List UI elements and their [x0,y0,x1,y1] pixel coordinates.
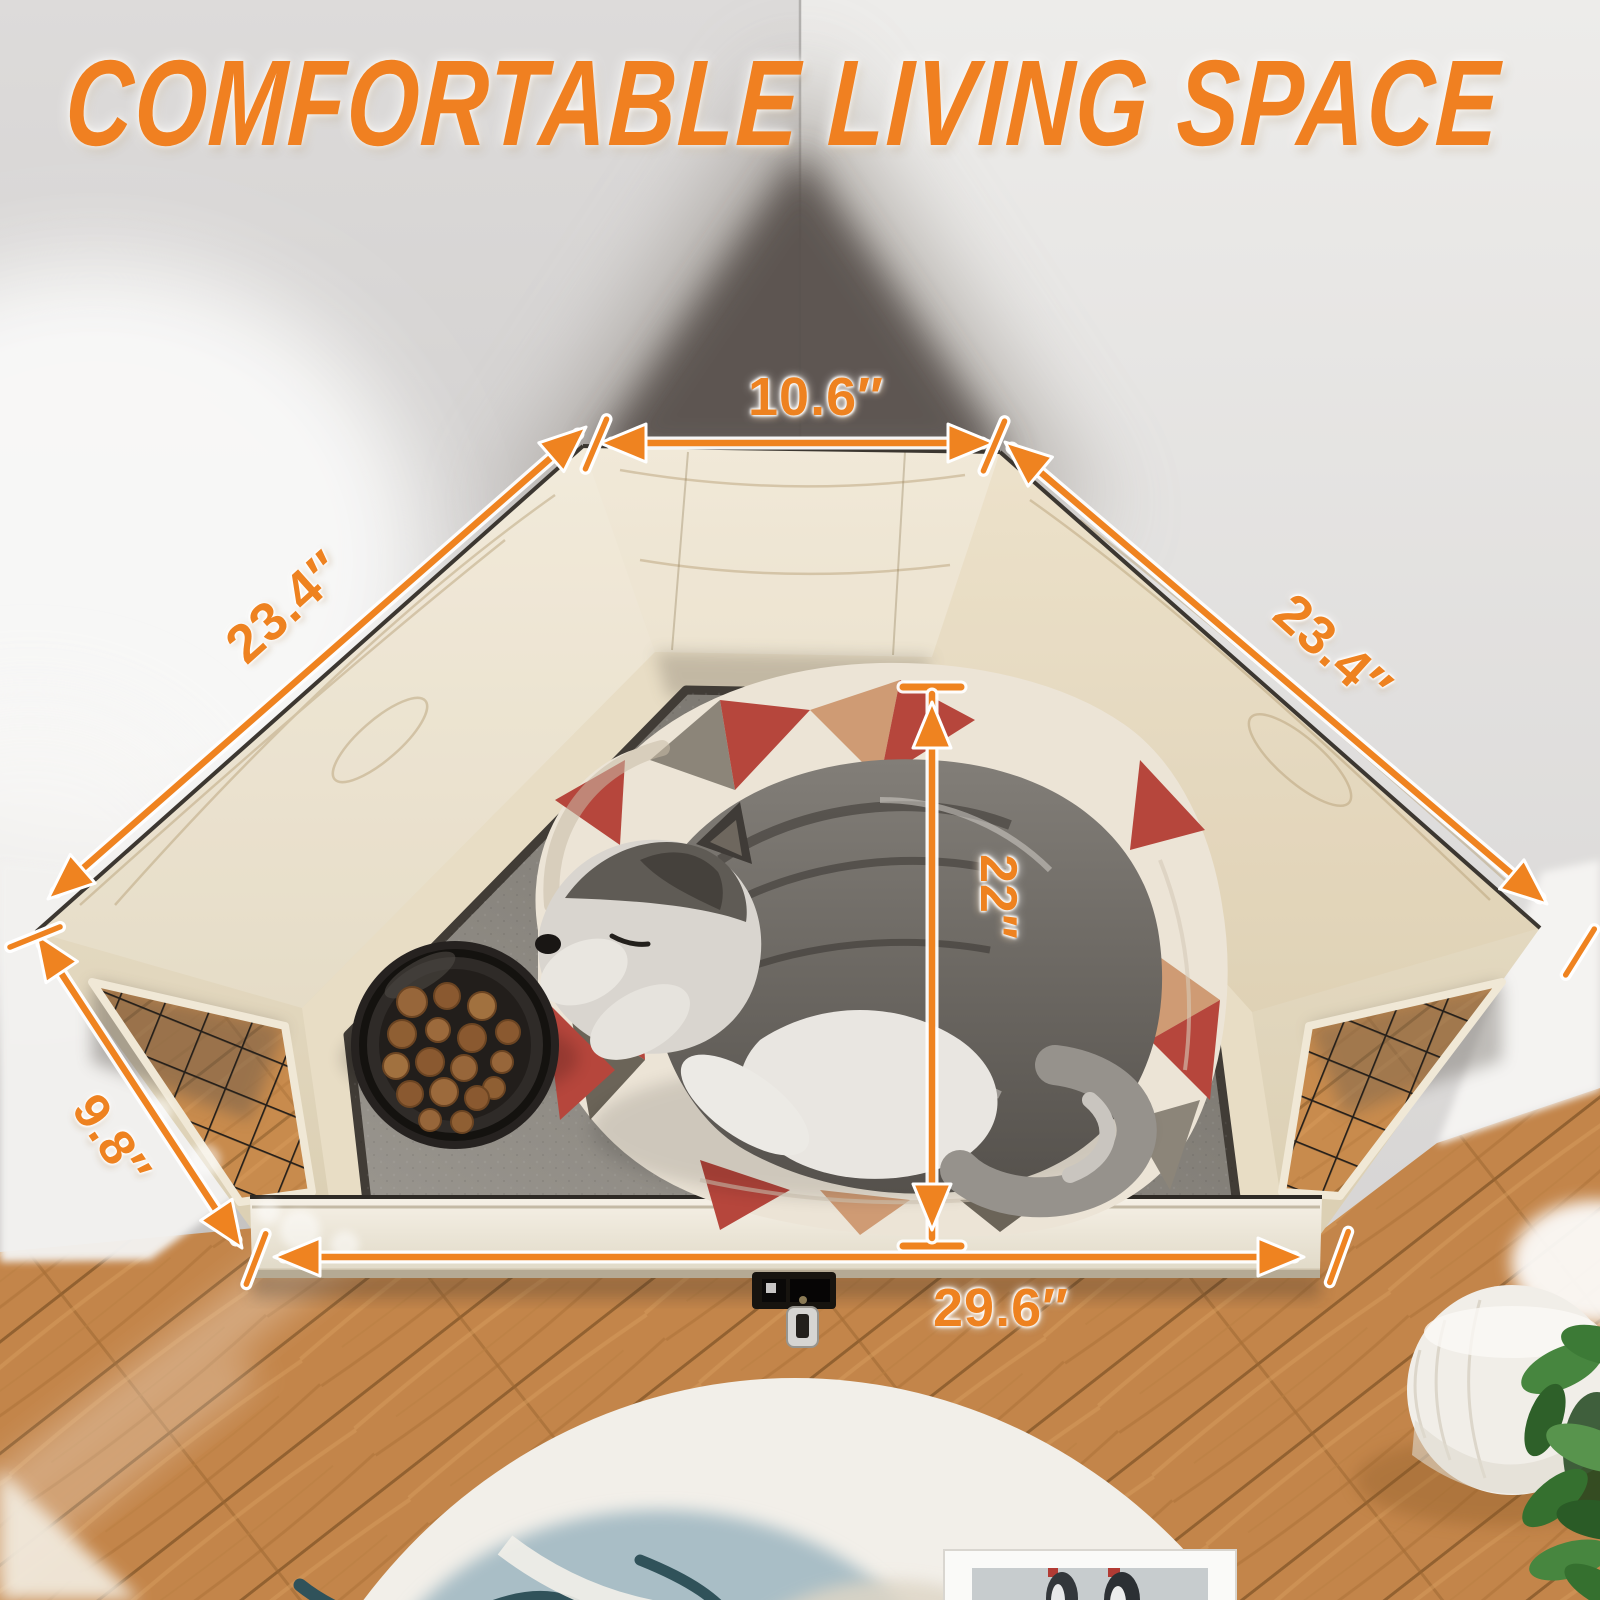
product-showcase: COMFORTABLE LIVING SPACE 10.6″ 23.4″ 23.… [0,0,1600,1600]
scene-illustration [0,0,1600,1600]
picture-frame [944,1550,1236,1600]
frame-photo [972,1568,1208,1600]
dog-nose [535,934,561,954]
